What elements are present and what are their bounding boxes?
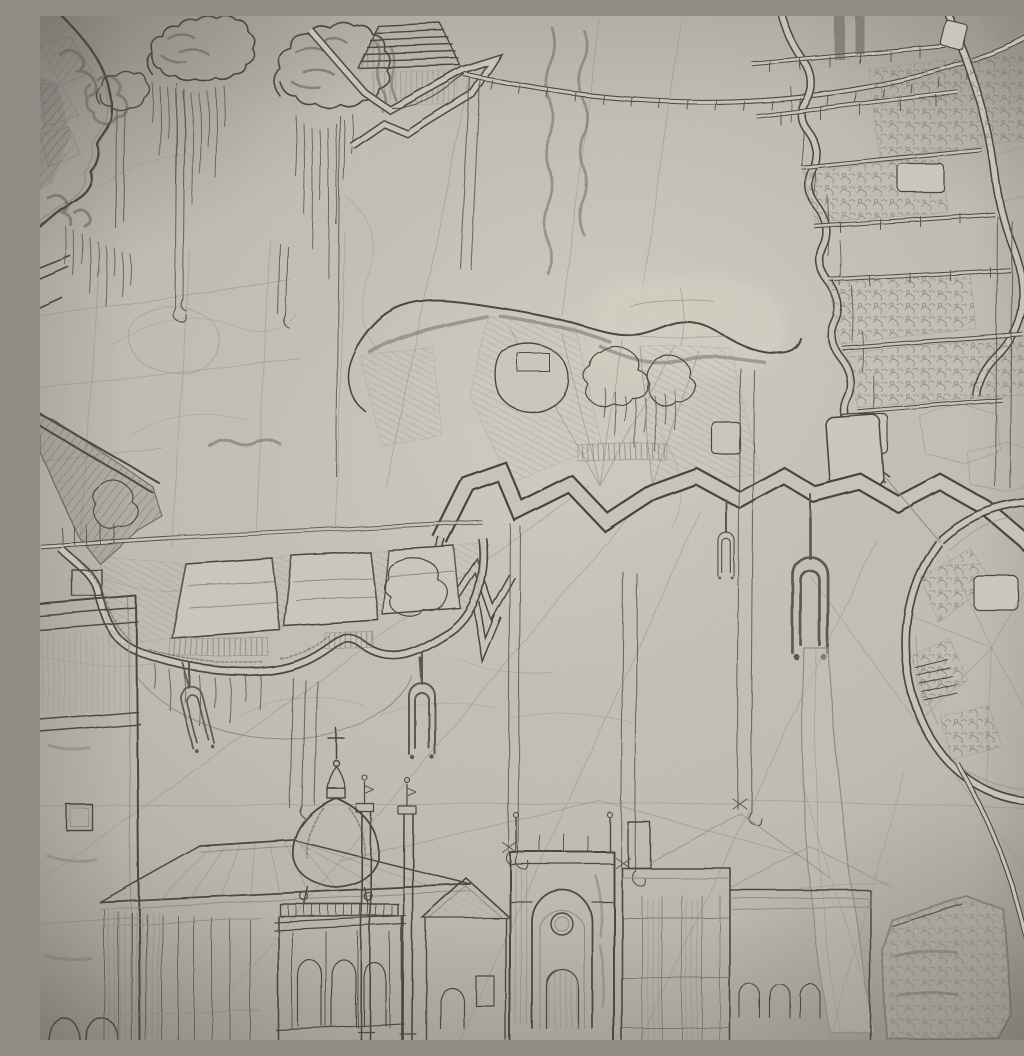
artwork-photo: graphite pencil architectural fantasy dr… <box>40 16 1024 1040</box>
paper-grain <box>40 16 1024 1040</box>
drawing-lineart <box>40 16 1024 1040</box>
